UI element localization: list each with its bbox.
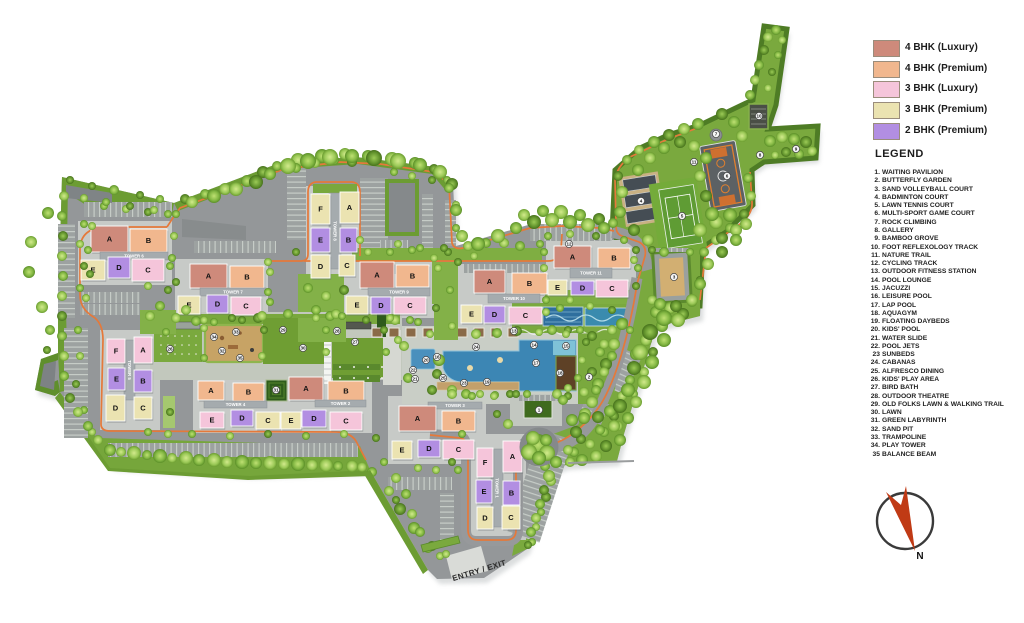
svg-text:TOWER 9: TOWER 9 [389,290,409,295]
svg-text:5: 5 [681,214,684,219]
svg-text:D: D [116,263,122,272]
svg-text:20: 20 [423,358,429,363]
svg-text:19: 19 [484,380,490,385]
svg-text:24: 24 [473,345,479,350]
svg-text:10: 10 [756,114,762,119]
svg-text:D: D [239,414,245,423]
svg-text:C: C [344,261,350,270]
svg-text:A: A [208,386,214,395]
svg-text:B: B [509,489,515,498]
svg-text:B: B [146,236,152,245]
svg-text:23: 23 [461,381,467,386]
svg-text:E: E [354,301,359,310]
svg-text:14: 14 [531,343,537,348]
svg-text:8: 8 [759,153,762,158]
svg-text:27: 27 [352,340,358,345]
svg-text:TOWER 5: TOWER 5 [127,360,132,380]
svg-text:11: 11 [692,160,697,165]
svg-text:1: 1 [538,408,541,413]
svg-text:E: E [481,487,486,496]
svg-text:E: E [288,416,293,425]
svg-text:7: 7 [715,132,718,137]
svg-text:E: E [399,446,404,455]
svg-text:16: 16 [434,355,440,360]
svg-text:D: D [215,300,221,309]
svg-text:D: D [426,444,432,453]
svg-text:22: 22 [410,368,416,373]
svg-text:D: D [378,301,384,310]
svg-text:B: B [527,279,533,288]
svg-text:C: C [508,513,514,522]
svg-text:B: B [456,417,462,426]
svg-text:12: 12 [566,242,572,247]
svg-text:28: 28 [334,329,340,334]
svg-text:C: C [523,311,529,320]
svg-text:D: D [580,284,586,293]
svg-text:B: B [343,387,349,396]
svg-text:34: 34 [211,335,217,340]
svg-text:33: 33 [233,330,239,335]
svg-text:TOWER 11: TOWER 11 [580,271,602,276]
svg-text:E: E [114,375,119,384]
svg-text:TOWER 10: TOWER 10 [503,296,525,301]
svg-text:15: 15 [563,344,569,349]
svg-text:F: F [318,205,323,214]
svg-text:TOWER 4: TOWER 4 [226,402,246,407]
svg-text:A: A [415,414,421,423]
svg-text:3: 3 [673,275,676,280]
svg-text:C: C [140,404,146,413]
svg-text:B: B [244,273,250,282]
svg-text:E: E [555,283,560,292]
svg-text:B: B [140,377,146,386]
svg-text:TOWER 2: TOWER 2 [331,401,351,406]
svg-text:B: B [246,388,252,397]
svg-text:E: E [469,310,474,319]
svg-text:N: N [916,551,923,562]
svg-text:25: 25 [440,376,446,381]
svg-text:TOWER 8: TOWER 8 [333,221,338,241]
svg-text:B: B [410,272,416,281]
svg-text:4: 4 [640,199,643,204]
svg-text:F: F [114,347,119,356]
svg-text:C: C [265,416,271,425]
svg-text:A: A [570,253,576,262]
svg-text:A: A [374,271,380,280]
svg-text:35: 35 [237,356,243,361]
svg-text:17: 17 [533,361,539,366]
svg-text:C: C [609,284,615,293]
svg-text:TOWER 7: TOWER 7 [223,290,243,295]
svg-text:F: F [483,458,488,467]
svg-text:A: A [140,346,146,355]
svg-text:C: C [456,445,462,454]
svg-text:C: C [145,266,151,275]
svg-text:C: C [343,417,349,426]
svg-text:29: 29 [280,328,286,333]
svg-text:D: D [492,310,498,319]
svg-text:A: A [303,384,309,393]
svg-text:26: 26 [167,347,173,352]
svg-text:A: A [107,235,113,244]
svg-text:13: 13 [511,329,517,334]
svg-text:B: B [611,254,617,263]
svg-text:D: D [311,414,317,423]
svg-text:18: 18 [557,371,563,376]
svg-text:TOWER 3: TOWER 3 [445,403,465,408]
svg-text:C: C [407,301,413,310]
svg-text:21: 21 [412,377,418,382]
svg-text:A: A [206,272,212,281]
svg-text:32: 32 [219,349,225,354]
svg-text:6: 6 [726,174,729,179]
svg-text:30: 30 [300,346,306,351]
svg-text:A: A [510,452,516,461]
svg-text:D: D [113,404,119,413]
svg-text:B: B [346,236,352,245]
svg-text:E: E [318,236,323,245]
svg-text:E: E [209,416,214,425]
svg-text:C: C [243,302,249,311]
svg-text:TOWER 1: TOWER 1 [495,478,500,498]
svg-text:D: D [482,514,488,523]
svg-text:9: 9 [795,147,798,152]
svg-text:A: A [487,277,493,286]
svg-text:A: A [347,203,353,212]
svg-text:2: 2 [588,375,591,380]
svg-text:D: D [318,262,324,271]
svg-text:31: 31 [273,388,279,393]
